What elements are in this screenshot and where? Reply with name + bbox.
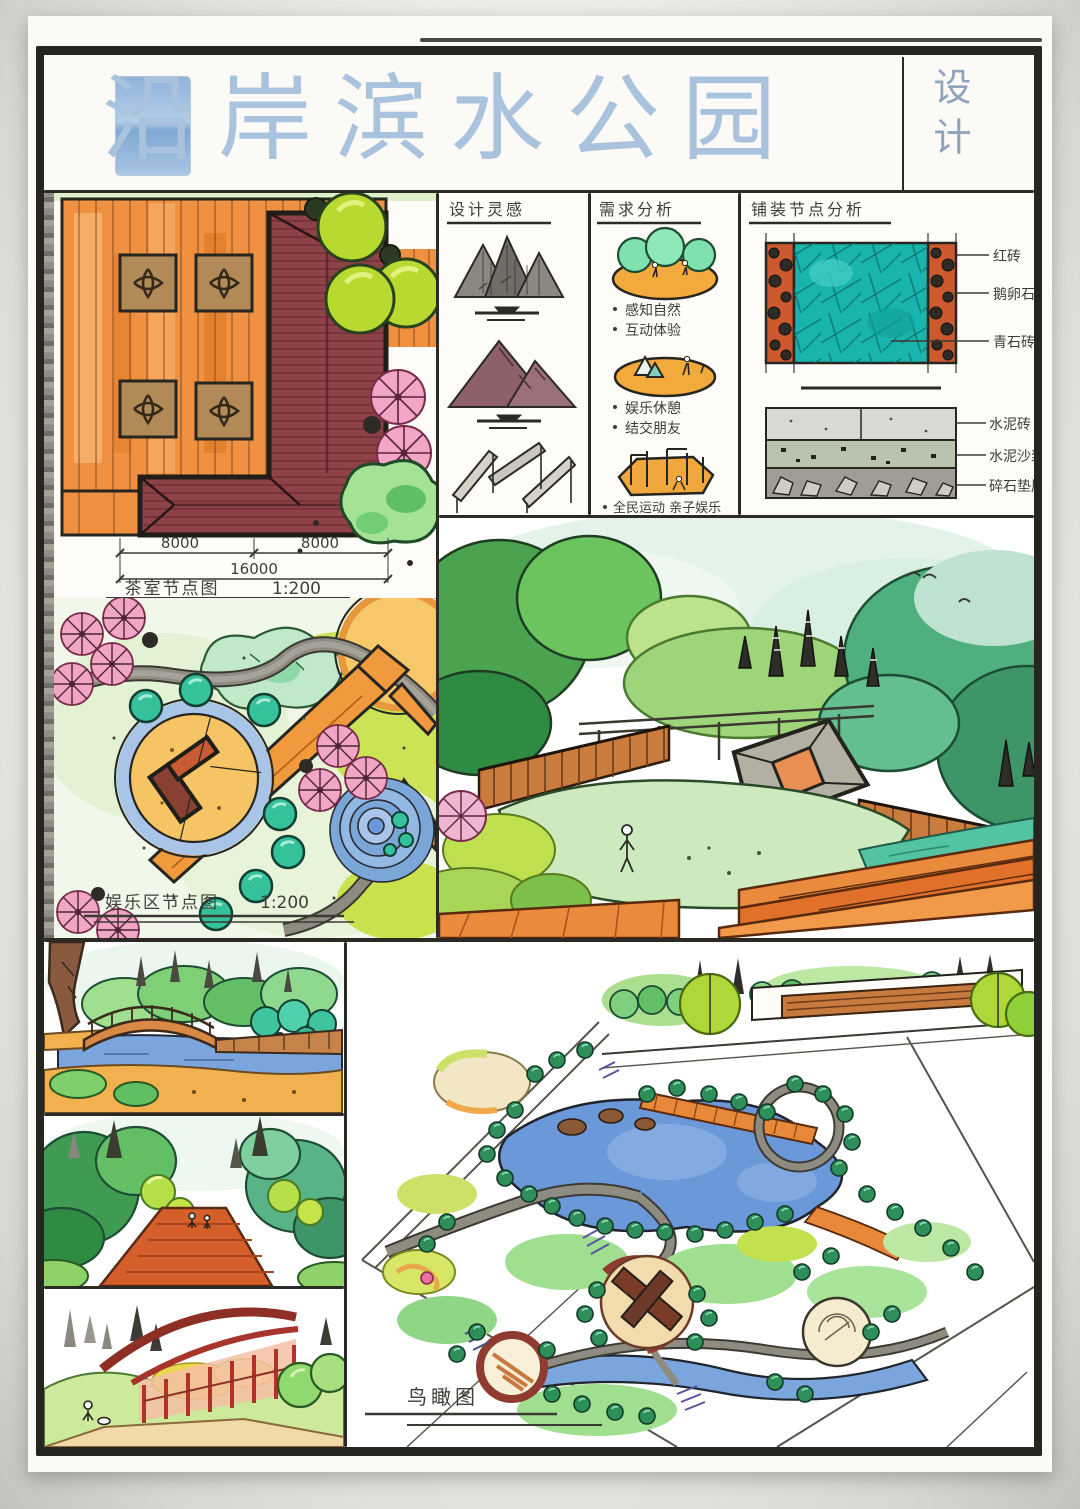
pink-tree: [439, 791, 486, 841]
needs-bullet-1: 感知自然: [625, 302, 681, 319]
inspiration-header: 设计灵感: [449, 200, 525, 219]
vignette-nature: [613, 228, 717, 299]
design-board-photo: { "title": { "main": "沿岸滨水公园", "suffix":…: [0, 0, 1080, 1509]
frame-bottom: [36, 1447, 1042, 1456]
needs-bullet-4: 结交朋友: [625, 420, 681, 437]
title-band: 沿岸滨水公园 设计: [44, 55, 1034, 190]
paving-header: 铺装节点分析: [751, 200, 865, 219]
label-gravel-cushion: 碎石垫层: [989, 479, 1034, 495]
label-bluestone: 青石砖: [993, 335, 1034, 351]
frame-right: [1034, 46, 1042, 1456]
needs-bullet-5: 全民运动 亲子娱乐: [613, 500, 721, 515]
entertainment-scale: 1:200: [260, 893, 309, 913]
east-pond-rings: [330, 778, 434, 882]
dim-left: 8000: [161, 534, 199, 552]
board-title: 沿岸滨水公园: [102, 65, 798, 175]
path-sketch-panel: [44, 1116, 344, 1286]
entertainment-caption: 娱乐区节点图: [105, 893, 219, 913]
birdseye-caption: 鸟瞰图: [407, 1385, 479, 1409]
sheet-edge-shading: [44, 190, 54, 942]
dim-right: 8000: [301, 534, 339, 552]
pergola-sketch-panel: [44, 1289, 344, 1447]
bridge-sketch-panel: [44, 942, 344, 1113]
dim-total: 16000: [230, 560, 278, 578]
paving-section-detail: [766, 408, 986, 498]
tea-plan-scale: 1:200: [272, 579, 321, 598]
east-plaza: [803, 1298, 871, 1366]
vignette-camping: [615, 356, 715, 396]
needs-analysis-panel: 需求分析 感知自然 互动体验 娱乐休憩 结交朋友 全民运动 亲子娱乐: [591, 193, 738, 515]
label-cement-mortar: 水泥沙浆: [989, 449, 1034, 465]
label-red-brick: 红砖: [993, 249, 1021, 265]
title-divider: [902, 57, 904, 190]
entertainment-plan-panel: 娱乐区节点图 1:200: [54, 598, 436, 938]
tea-room-plan-panel: 8000 8000 16000 茶室节点图 1:200: [54, 193, 436, 598]
frame-left: [36, 46, 44, 1456]
perspective-sketch-panel: [439, 518, 1034, 938]
design-inspiration-panel: 设计灵感: [439, 193, 588, 515]
label-cement-brick: 水泥砖: [989, 417, 1031, 433]
label-pebble: 鹅卵石: [993, 286, 1034, 303]
board-title-suffix: 设计: [922, 67, 977, 187]
central-plaza: [601, 1256, 693, 1350]
frame-top-tape: [420, 38, 1042, 42]
tea-room-plan-drawing: 8000 8000 16000 茶室节点图 1:200: [54, 193, 436, 598]
tea-plan-caption: 茶室节点图: [125, 579, 220, 598]
birdseye-panel: 鸟瞰图: [347, 942, 1034, 1447]
flower-garden: [383, 1250, 455, 1294]
frame-top: [36, 46, 1042, 55]
needs-bullet-3: 娱乐休憩: [625, 400, 681, 417]
needs-bullet-2: 互动体验: [625, 323, 681, 339]
paving-plan-detail: [766, 233, 989, 373]
west-pond: [115, 699, 273, 857]
needs-header: 需求分析: [599, 200, 675, 219]
paving-analysis-panel: 铺装节点分析 红砖 鹅卵石 青石砖: [741, 193, 1034, 515]
